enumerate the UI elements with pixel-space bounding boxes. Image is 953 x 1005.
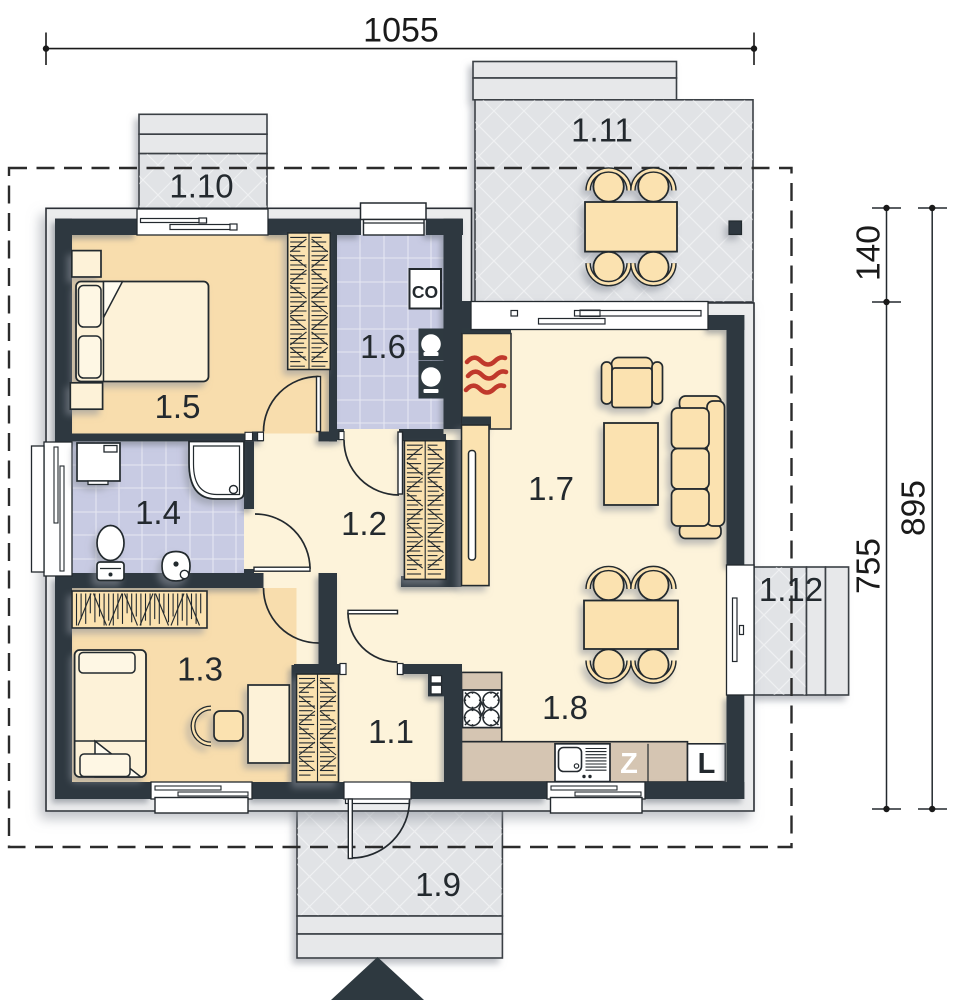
- svg-text:Z: Z: [620, 748, 638, 780]
- svg-text:755: 755: [851, 538, 888, 594]
- svg-text:1.8: 1.8: [542, 689, 588, 726]
- svg-text:1.12: 1.12: [759, 571, 823, 608]
- svg-text:1.3: 1.3: [177, 651, 223, 688]
- svg-text:1.11: 1.11: [571, 112, 633, 149]
- svg-text:895: 895: [896, 480, 933, 536]
- svg-text:CO: CO: [412, 282, 438, 302]
- svg-text:1.6: 1.6: [360, 328, 406, 365]
- svg-text:1.7: 1.7: [528, 470, 574, 507]
- svg-text:1.9: 1.9: [415, 866, 461, 903]
- svg-text:1.10: 1.10: [169, 167, 233, 204]
- svg-text:1.4: 1.4: [135, 494, 181, 531]
- svg-text:1.2: 1.2: [341, 505, 387, 542]
- svg-text:1055: 1055: [363, 12, 439, 50]
- svg-text:1.5: 1.5: [155, 388, 201, 425]
- svg-text:1.1: 1.1: [368, 713, 414, 750]
- svg-text:L: L: [698, 748, 716, 780]
- svg-text:140: 140: [851, 225, 888, 281]
